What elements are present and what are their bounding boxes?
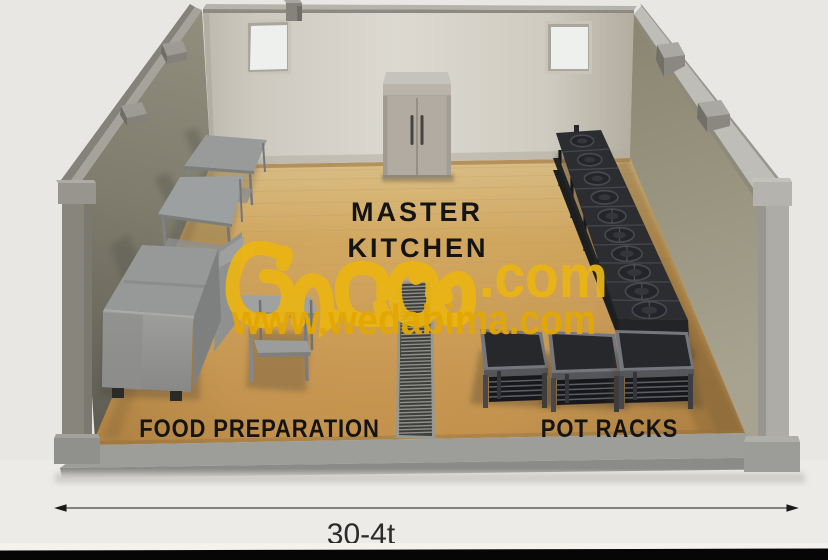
svg-text:KITCHEN: KITCHEN — [348, 233, 489, 263]
svg-text:www.wedabima.com: www.wedabima.com — [231, 297, 596, 343]
svg-text:FOOD PREPARATION: FOOD PREPARATION — [139, 415, 379, 443]
svg-text:MASTER: MASTER — [351, 197, 483, 227]
svg-text:POT RACKS: POT RACKS — [541, 415, 678, 443]
